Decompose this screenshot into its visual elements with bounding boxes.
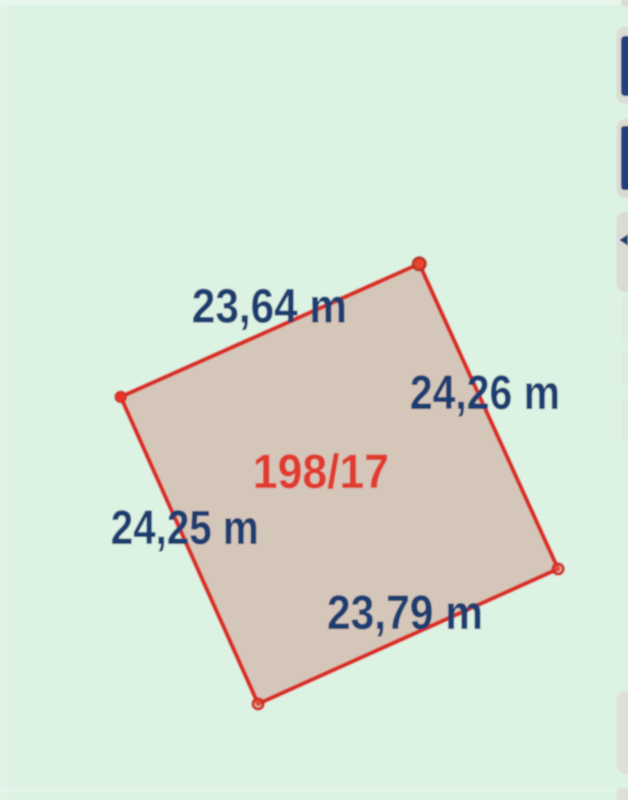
svg-text:24,26 m: 24,26 m bbox=[410, 367, 560, 420]
svg-text:23,64 m: 23,64 m bbox=[192, 281, 347, 334]
svg-text:24,25 m: 24,25 m bbox=[111, 502, 259, 555]
svg-text:198/17: 198/17 bbox=[253, 446, 389, 499]
svg-text:23,79 m: 23,79 m bbox=[327, 587, 483, 640]
